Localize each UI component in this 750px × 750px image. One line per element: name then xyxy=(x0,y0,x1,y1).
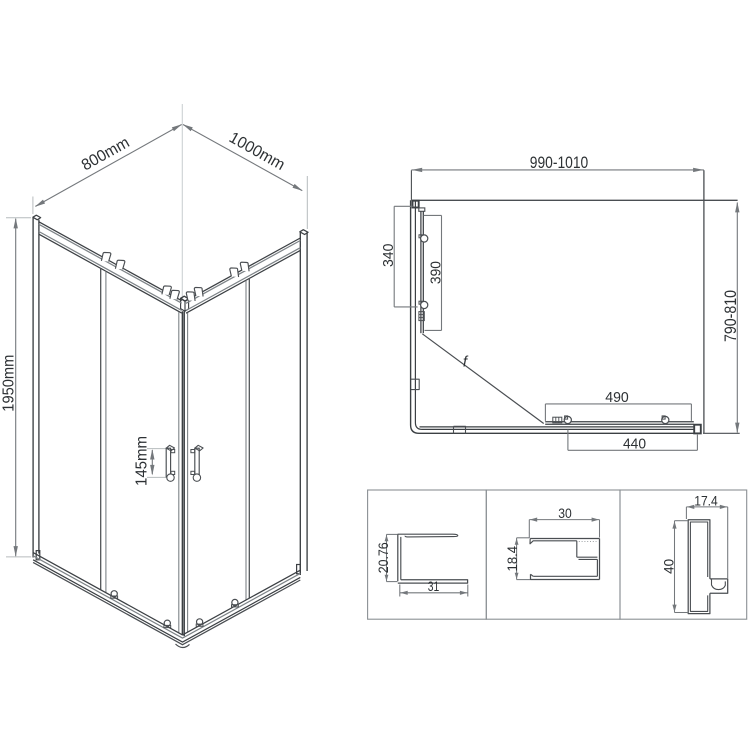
svg-text:790-810: 790-810 xyxy=(721,290,740,342)
svg-text:490: 490 xyxy=(605,389,629,406)
svg-text:31: 31 xyxy=(428,578,440,594)
svg-text:440: 440 xyxy=(623,436,646,453)
svg-text:390: 390 xyxy=(428,261,445,284)
svg-text:30: 30 xyxy=(558,505,572,521)
svg-text:20.76: 20.76 xyxy=(375,542,391,573)
svg-text:1950mm: 1950mm xyxy=(1,355,18,412)
svg-text:17.4: 17.4 xyxy=(694,492,718,508)
svg-text:990-1010: 990-1010 xyxy=(530,153,589,172)
svg-text:40: 40 xyxy=(661,559,677,574)
svg-text:18.4: 18.4 xyxy=(504,546,520,572)
svg-text:145mm: 145mm xyxy=(134,436,151,486)
svg-text:340: 340 xyxy=(380,244,397,267)
